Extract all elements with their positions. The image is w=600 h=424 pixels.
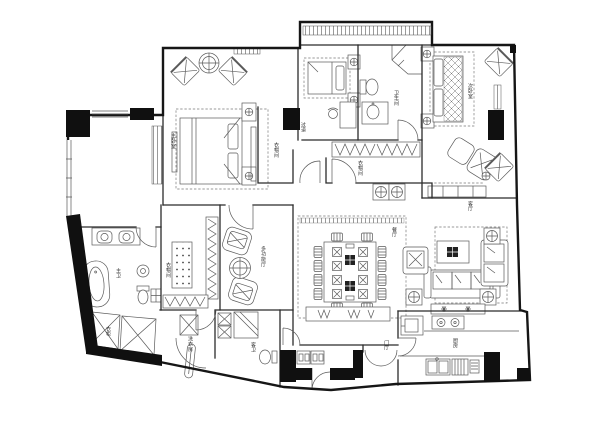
planter-box (152, 126, 162, 184)
room-label-master-bedroom: 主卧室 (170, 132, 176, 149)
desk-icon (328, 102, 356, 128)
room-label-master-bath: 主卫 (115, 267, 121, 278)
single-bed-icon (308, 62, 346, 94)
hanging-rack-icon (163, 295, 208, 308)
tv-cabinet-icon (428, 186, 486, 197)
room-label-corridor-closet: 衣帽间 (357, 159, 363, 177)
fridge-icon (401, 316, 423, 335)
entry-door-arc (312, 368, 330, 390)
nightstand-icon (242, 103, 256, 121)
middle-bedroom-furniture (308, 55, 360, 128)
stove-icon (432, 316, 464, 329)
room-label-hallway: 过道 (300, 121, 306, 133)
double-door-arc (365, 350, 397, 366)
double-bed-icon (433, 56, 463, 122)
multipurpose-furniture (221, 226, 259, 307)
armchair-icon (218, 57, 247, 86)
sideboard-icon (306, 307, 390, 321)
dining-table (324, 242, 376, 302)
washer-icon (180, 315, 198, 335)
clock-icon (482, 172, 490, 180)
shelf-icon (151, 289, 161, 302)
shower-icon (392, 45, 422, 74)
toilet-icon (137, 286, 149, 304)
door-arc (196, 310, 216, 330)
room-label-second-bedroom: 次卧室 (467, 82, 473, 99)
armchair-icon (171, 57, 200, 86)
armchair-icon (403, 247, 428, 274)
bathroom-fixtures (360, 45, 422, 124)
sink-vanity-icon (362, 102, 388, 124)
master-bath-fixtures (82, 228, 161, 308)
nightstand-icon (421, 47, 434, 61)
master-bed-icon (180, 118, 242, 184)
room-label-kitchen: 厨房 (452, 338, 458, 350)
floor-plan-drawing: 主卧室 衣帽间 过道 卫生间 次卧室 衣帽间 餐厅 客厅 厨房 主卫 衣柜 衣帽… (0, 0, 600, 424)
washer-dryer-stack-icon (218, 313, 231, 338)
room-label-master-closet: 衣帽间 (273, 141, 279, 159)
plant-icon (389, 184, 405, 200)
door-arc (300, 161, 320, 183)
nightstand-icon (242, 167, 256, 185)
wall-bench (494, 85, 501, 109)
shoe-cabinet-icon (297, 351, 310, 364)
door-arc (398, 338, 416, 356)
room-label-dining: 餐厅 (391, 226, 397, 237)
double-vanity-icon (92, 228, 140, 245)
door-arc (283, 328, 300, 345)
toilet-icon (260, 350, 278, 364)
room-label-guest-bath: 客卫 (250, 341, 256, 352)
floor-plan-canvas: 主卧室 衣帽间 过道 卫生间 次卧室 衣帽间 餐厅 客厅 厨房 主卫 衣柜 衣帽… (0, 0, 600, 424)
dining-set (306, 233, 390, 321)
door-arc (229, 205, 253, 229)
lounge-chair-icon (221, 226, 253, 257)
shoe-cabinet-icon (311, 351, 324, 364)
room-label-living: 客厅 (467, 200, 473, 211)
shower-icon (234, 312, 258, 338)
walkin-closet-fittings (163, 217, 218, 308)
small-appliance-icon (470, 360, 479, 373)
nightstand-icon (421, 114, 434, 128)
closet-island (172, 242, 192, 288)
master-bedroom-furniture (152, 48, 260, 185)
side-table-icon (480, 289, 496, 305)
pedestal-sink-icon (137, 265, 149, 277)
door-arc (398, 120, 418, 140)
room-label-wardrobe: 衣柜 (105, 325, 111, 337)
plant-icon (373, 184, 389, 200)
room-label-foyer: 门厅 (383, 339, 389, 350)
tv-console-icon (431, 304, 485, 314)
round-table-icon (230, 258, 251, 279)
toilet-icon (360, 79, 378, 95)
lounge-chair-icon (227, 276, 259, 307)
guest-bath-fixtures (218, 312, 277, 364)
room-label-walkin-closet: 衣帽间 (165, 261, 171, 279)
side-table-icon (484, 228, 500, 244)
side-table-icon (406, 289, 422, 305)
foyer-fittings (297, 351, 324, 364)
kitchen-fixtures (400, 316, 519, 375)
room-label-laundry: 洗衣房 (187, 335, 193, 353)
round-table-icon (199, 53, 219, 73)
loveseat-icon (481, 240, 508, 286)
room-label-bathroom: 卫生间 (393, 90, 399, 107)
corner-chair-icon (484, 48, 513, 77)
living-room-furniture (403, 228, 508, 314)
kitchen-sink-icon (426, 358, 450, 375)
dining-ceiling-beam (300, 218, 404, 223)
corridor-closet-icon (332, 142, 420, 157)
coffee-table-icon (437, 241, 469, 263)
room-label-multipurpose: 多功能厅 (260, 245, 266, 267)
hanging-rack-icon (206, 217, 218, 299)
window-band (303, 26, 431, 35)
door-arc (332, 159, 356, 183)
dish-rack-icon (452, 359, 468, 375)
